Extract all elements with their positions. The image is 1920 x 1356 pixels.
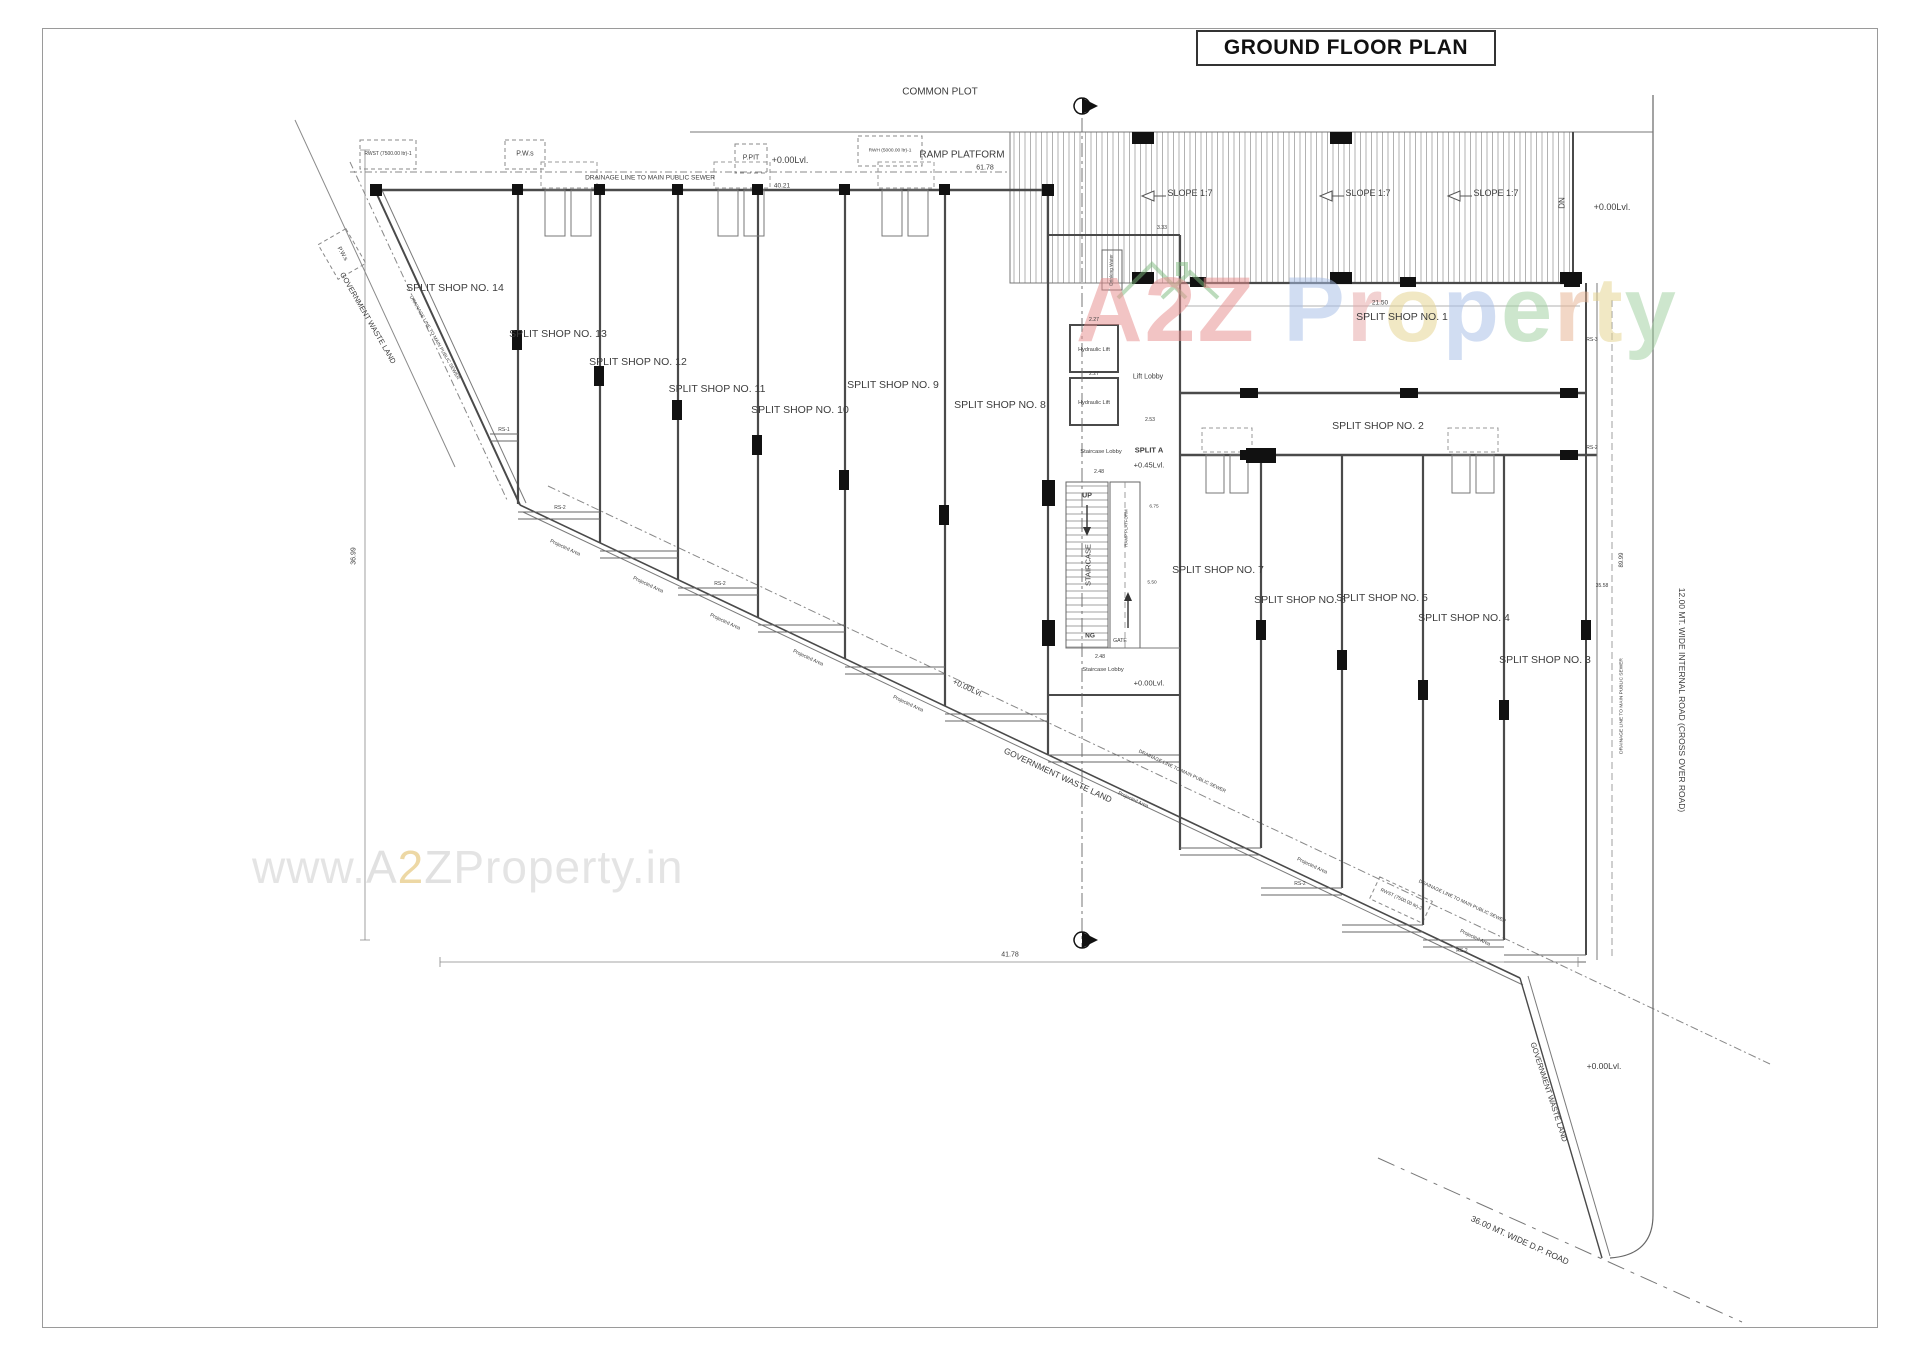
up-label: UP — [1082, 493, 1092, 500]
d550-label: 5.50 — [1147, 581, 1156, 586]
d333-label: 3.33 — [1157, 225, 1167, 231]
ramp_platform-label: RAMP PLATFORM — [1124, 509, 1129, 546]
1-label: SPLIT SHOP NO. 2 — [1332, 420, 1424, 432]
2-label: SPLIT SHOP NO. 3 — [1499, 654, 1591, 666]
gate-label: GATE — [1113, 638, 1127, 644]
ramp_platform-label: RAMP PLATFORM — [919, 150, 1004, 161]
lift_lobby-label: Lift Lobby — [1133, 374, 1163, 381]
staircase_lobby-label: Staircase Lobby — [1082, 667, 1124, 673]
page-title: GROUND FLOOR PLAN — [1224, 36, 1468, 60]
12-label: SPLIT SHOP NO. 13 — [509, 328, 607, 340]
pws-label: P.W.s — [516, 151, 533, 158]
d248-label: 2.48 — [1094, 469, 1104, 475]
split_a-label: SPLIT A — [1135, 446, 1163, 455]
7-label: SPLIT SHOP NO. 8 — [954, 399, 1046, 411]
rs2-label: RS-2 — [714, 581, 725, 587]
staircase_lobby-label: Staircase Lobby — [1080, 449, 1122, 455]
floor-plan-sheet: GROUND FLOOR PLAN A2Z Property www.A2ZPr… — [0, 0, 1920, 1356]
d227-label: 2.27 — [1089, 317, 1099, 323]
d4021-label: 40.21 — [774, 183, 790, 190]
road12-label: 12.00 MT. WIDE INTERNAL ROAD (CROSS OVER… — [1677, 588, 1687, 813]
hydraulic-label: Hydraulic Lift — [1078, 400, 1110, 406]
d3558-label: 35.58 — [1596, 583, 1609, 589]
d253-label: 2.53 — [1145, 417, 1155, 423]
ng-label: NG — [1085, 633, 1095, 640]
drainage-label: DRAINAGE LINE TO MAIN PUBLIC SEWER — [1620, 658, 1625, 754]
8-label: SPLIT SHOP NO. 9 — [847, 379, 939, 391]
lvl000-label: +0.00Lvl. — [1594, 202, 1631, 212]
11-label: SPLIT SHOP NO. 12 — [589, 356, 687, 368]
rs2-label: RS-2 — [554, 505, 565, 511]
hydraulic-label: Hydraulic Lift — [1078, 347, 1110, 353]
rs2-label: RS-2 — [1586, 445, 1597, 451]
title-box: GROUND FLOOR PLAN — [1196, 30, 1496, 66]
staircase-label: STAIRCASE — [1084, 544, 1093, 586]
ppit-label: P.PIT — [743, 155, 760, 162]
13-label: SPLIT SHOP NO. 14 — [406, 282, 504, 294]
dn-label: DN — [1558, 197, 1567, 209]
lvl045-label: +0.45Lvl. — [1134, 461, 1165, 470]
rwh-label: RWH (5000.00 ltr)-1 — [869, 149, 912, 154]
d248-label: 2.48 — [1095, 654, 1105, 660]
common_plot-label: COMMON PLOT — [902, 87, 978, 98]
plan-linework — [0, 0, 1920, 1356]
lvl000-label: +0.00Lvl. — [1587, 1061, 1622, 1071]
slope-label: SLOPE 1:7 — [1167, 188, 1212, 198]
0-label: SPLIT SHOP NO. 1 — [1356, 311, 1448, 323]
slope-label: SLOPE 1:7 — [1473, 188, 1518, 198]
lvl000-label: +0.00Lvl. — [1134, 679, 1165, 688]
d6178-label: 61.78 — [976, 165, 994, 172]
rwst1-label: RWST (7500.00 ltr)-1 — [364, 151, 411, 157]
4-label: SPLIT SHOP NO. 5 — [1336, 592, 1428, 604]
d3699-label: 36.99 — [351, 547, 358, 565]
6-label: SPLIT SHOP NO. 7 — [1172, 564, 1264, 576]
drinking-label: Drinking Water — [1110, 254, 1115, 286]
rs1-label: RS-1 — [498, 427, 509, 433]
10-label: SPLIT SHOP NO. 11 — [669, 383, 766, 395]
rs3-label: RS-3 — [1586, 337, 1597, 343]
9-label: SPLIT SHOP NO. 10 — [751, 404, 849, 416]
d4178-label: 41.78 — [1001, 952, 1019, 959]
5-label: SPLIT SHOP NO. 6 — [1254, 594, 1346, 606]
d2150-label: 21.50 — [1372, 300, 1388, 307]
drainage-label: DRAINAGE LINE TO MAIN PUBLIC SEWER — [585, 175, 715, 182]
slope-label: SLOPE 1:7 — [1345, 188, 1390, 198]
rs2-label: RS-2 — [1456, 948, 1467, 954]
rs2-label: RS-2 — [1294, 881, 1305, 887]
lvl000-label: +0.00Lvl. — [772, 155, 809, 165]
d227-label: 2.27 — [1089, 371, 1099, 377]
3-label: SPLIT SHOP NO. 4 — [1418, 612, 1510, 624]
d675-label: 6.75 — [1149, 505, 1158, 510]
d8999-label: 89.99 — [1619, 552, 1625, 567]
